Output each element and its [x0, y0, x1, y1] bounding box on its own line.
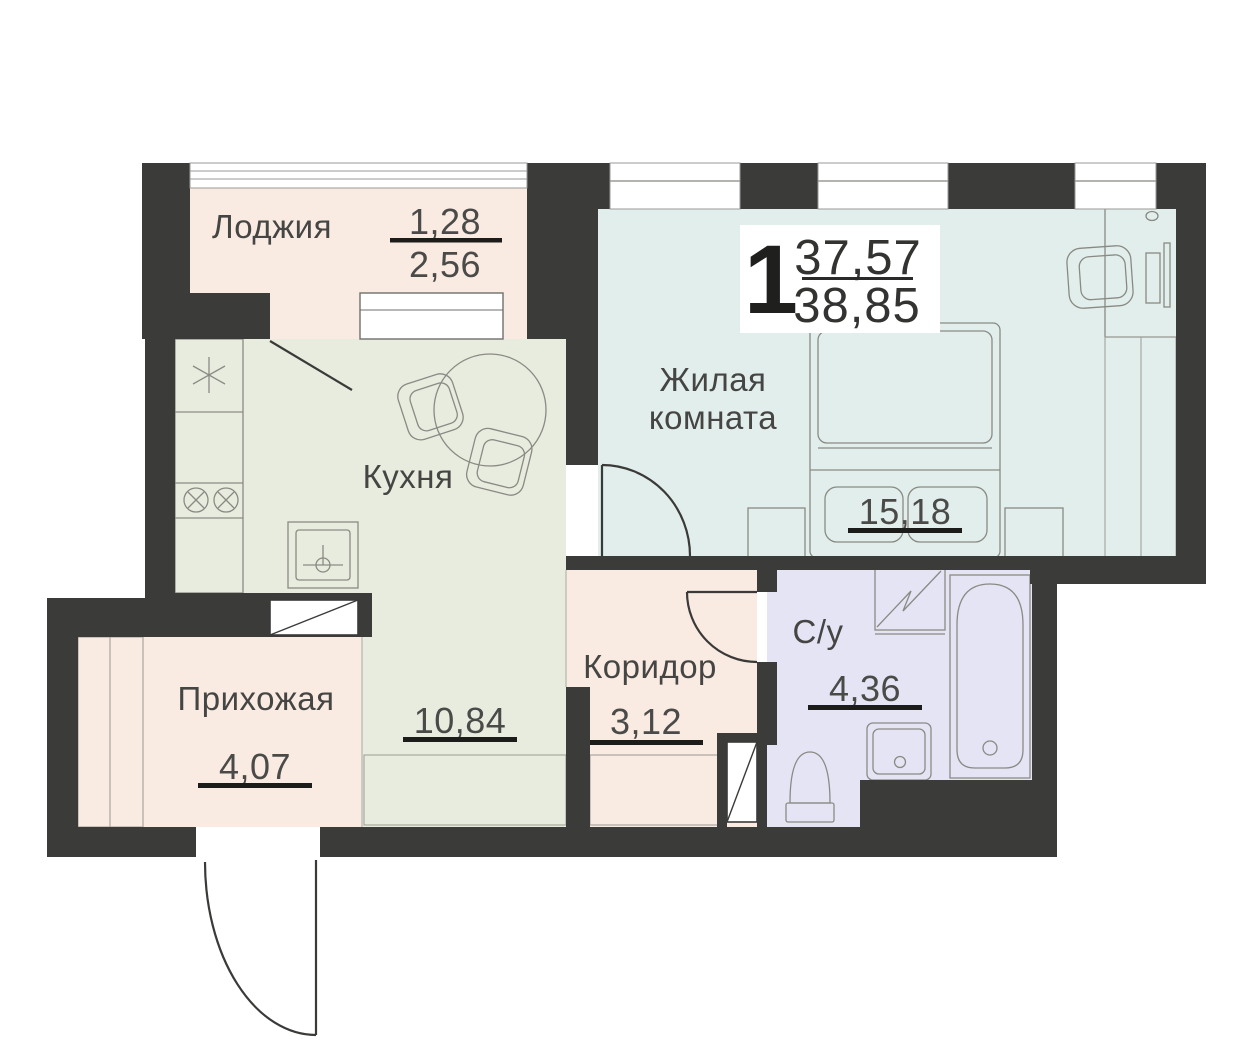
living-underline — [848, 528, 962, 533]
hallway-underline — [198, 783, 312, 788]
room-hallway — [78, 637, 362, 827]
summary-card: 1 37,57 38,85 — [740, 225, 940, 334]
hallway-area: 4,07 — [219, 746, 291, 787]
corridor-area: 3,12 — [610, 701, 682, 742]
loggia-window — [190, 163, 527, 188]
living-label-line1: Жилая — [660, 361, 767, 398]
living-area-total: 37,57 — [794, 231, 922, 285]
living-window-2 — [818, 163, 948, 209]
kitchen-label: Кухня — [363, 458, 454, 495]
entrance-opening — [196, 827, 320, 857]
loggia-area-reduced: 1,28 — [409, 201, 481, 242]
living-area: 15,18 — [859, 491, 952, 532]
bathroom-area: 4,36 — [829, 668, 901, 709]
loggia-kitchen-window — [360, 293, 503, 339]
entrance-door — [205, 860, 316, 1035]
rooms-count: 1 — [744, 225, 798, 334]
living-window-1 — [610, 163, 740, 209]
living-label-line2: комната — [649, 399, 777, 436]
loggia-area-full: 2,56 — [409, 244, 481, 285]
corridor-niche-door — [727, 742, 757, 822]
floor-plan-svg: 1 37,57 38,85 Лоджия 1,28 2,56 Жилая ком… — [0, 0, 1250, 1042]
kitchen-area: 10,84 — [414, 700, 507, 741]
loggia-underline — [390, 238, 502, 243]
floor-plan: 1 37,57 38,85 Лоджия 1,28 2,56 Жилая ком… — [0, 0, 1250, 1042]
bathroom-underline — [808, 705, 922, 710]
total-area: 38,85 — [793, 279, 921, 333]
living-window-3 — [1075, 163, 1156, 209]
kitchen-underline — [403, 737, 517, 742]
loggia-label: Лоджия — [212, 208, 332, 245]
corridor-underline — [590, 740, 703, 745]
hallway-cupboard — [270, 600, 358, 635]
corridor-label: Коридор — [583, 648, 717, 685]
hallway-label: Прихожая — [178, 680, 335, 717]
bathroom-label: С/у — [793, 613, 844, 650]
